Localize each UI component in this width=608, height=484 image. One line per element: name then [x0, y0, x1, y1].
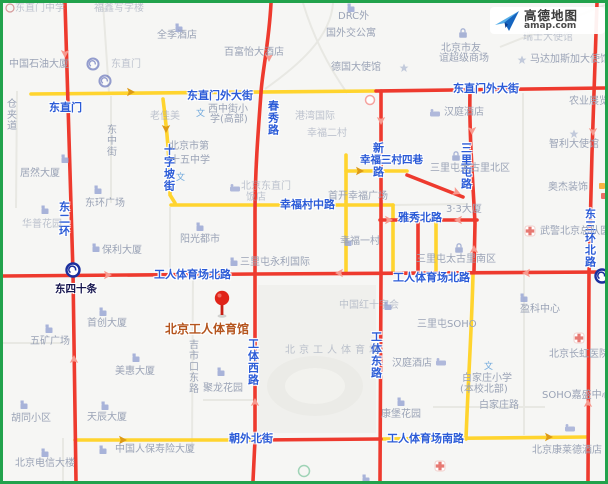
- metro-icon-right-edge: [596, 270, 606, 283]
- metro-icon-dongzhimen2: [99, 75, 110, 86]
- building-icon: [100, 308, 107, 317]
- food-icon: [599, 183, 605, 189]
- lock-icon: [455, 244, 463, 253]
- building-icon: [62, 155, 69, 164]
- building-icon: [133, 354, 140, 363]
- camera-icon: [366, 96, 375, 105]
- lock-icon: [459, 29, 467, 38]
- school-badge-icon: [6, 4, 14, 12]
- map-canvas[interactable]: 东直门外大街 东直门外大街 春秀路 十字坡街 幸福村中路 新东路 三里屯路 幸福…: [0, 0, 608, 484]
- paper-plane-icon: [494, 9, 520, 33]
- building-icon: [345, 238, 352, 247]
- building-icon: [21, 401, 28, 410]
- building-icon: [385, 302, 392, 311]
- metro-icon-dongzhimen: [87, 58, 98, 69]
- metro-icon-dongsishitiao: [67, 264, 80, 277]
- building-icon: [46, 325, 53, 334]
- amap-logo: 高德地图 amap.com: [490, 7, 605, 34]
- star-icon: [400, 64, 409, 73]
- pin-icon[interactable]: [215, 291, 229, 318]
- hotel-icon: [230, 184, 240, 192]
- building-icon: [197, 223, 204, 232]
- hotel-icon: [436, 358, 446, 366]
- food-icon: [601, 193, 605, 199]
- building-icon: [95, 186, 102, 195]
- building-icon: [363, 475, 370, 482]
- building-icon: [218, 368, 225, 377]
- star-icon: [518, 56, 527, 65]
- hospital-icon: [525, 226, 535, 236]
- background-streets: [3, 3, 605, 481]
- building-icon: [93, 244, 100, 253]
- lock-icon: [452, 152, 460, 161]
- building-icon: [42, 449, 49, 458]
- building-icon: [100, 446, 107, 455]
- building-icon: [398, 398, 405, 407]
- hotel-icon: [565, 424, 575, 432]
- building-icon: [348, 4, 355, 13]
- hospital-icon: [574, 333, 584, 343]
- hotel-icon: [430, 109, 440, 117]
- park-icon: [299, 466, 310, 477]
- building-icon: [231, 258, 238, 267]
- map-graphics-layer: [3, 3, 605, 481]
- building-icon: [176, 24, 183, 33]
- building-icon: [102, 402, 109, 411]
- logo-domain-text: amap.com: [524, 22, 578, 31]
- building-icon: [42, 206, 49, 215]
- hospital-icon: [435, 461, 445, 471]
- star-icon: [570, 130, 579, 139]
